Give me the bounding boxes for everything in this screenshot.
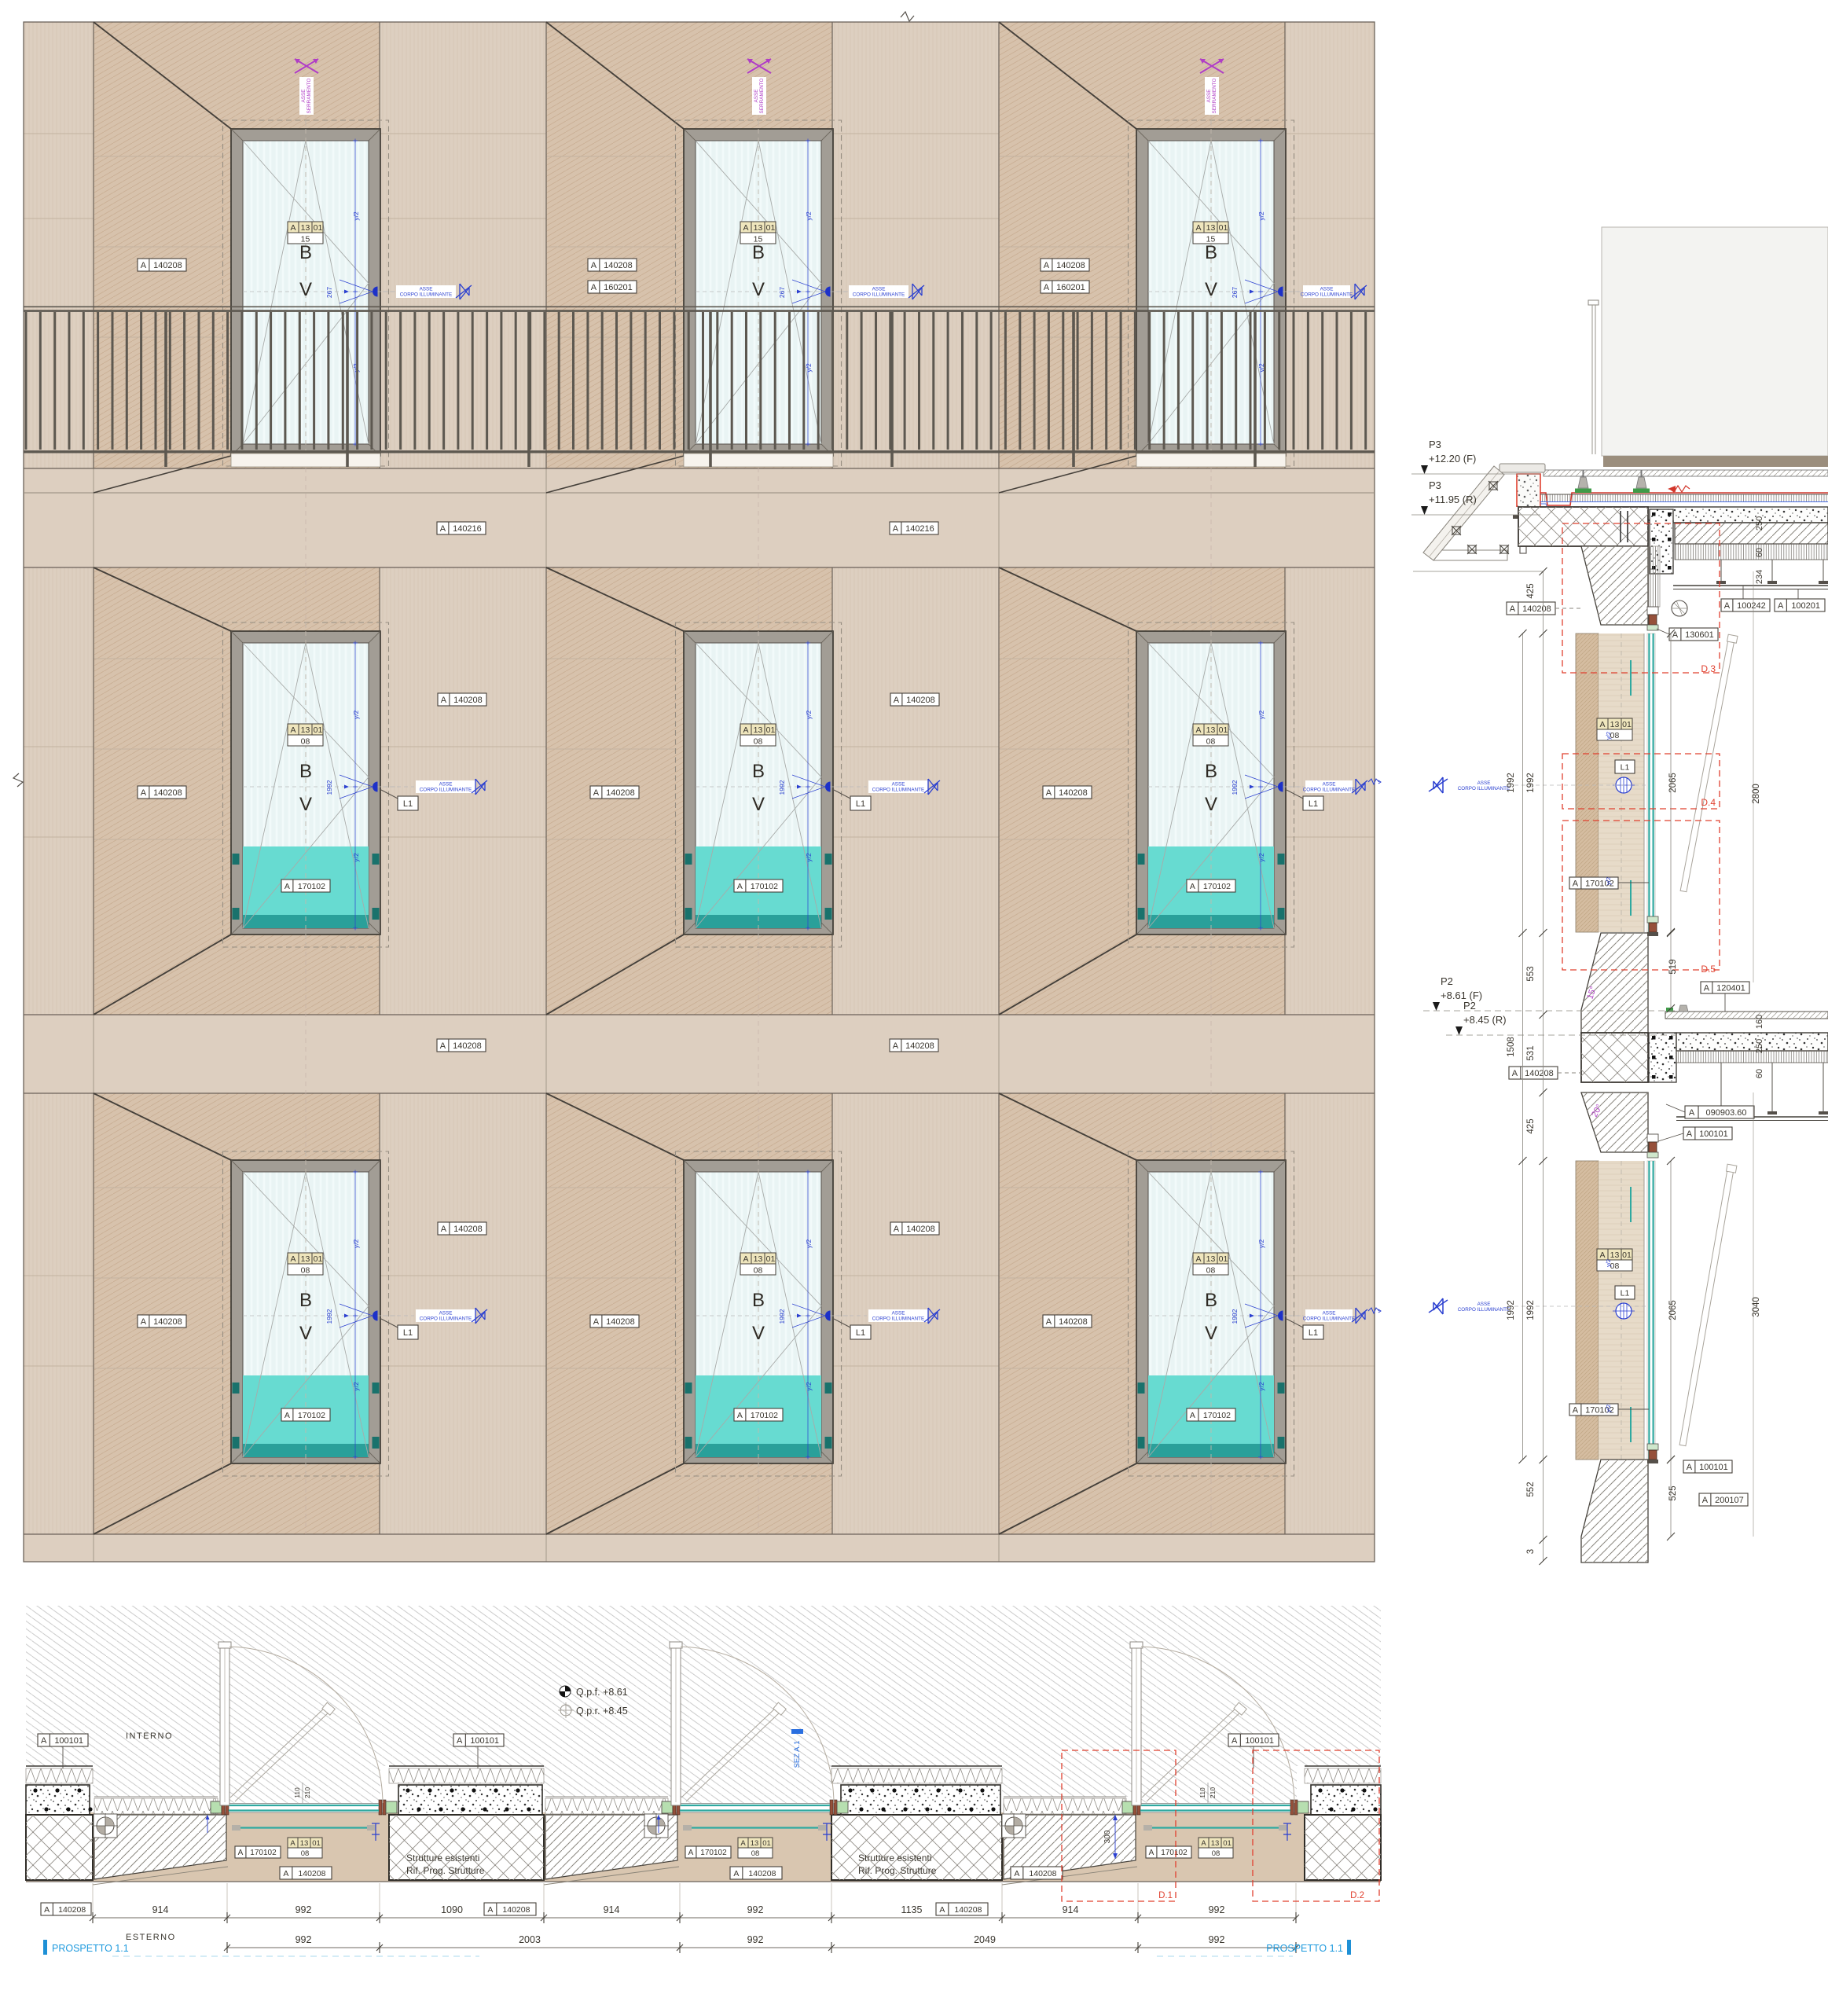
svg-text:CORPO ILLUMINANTE: CORPO ILLUMINANTE bbox=[1458, 1307, 1510, 1313]
svg-text:A: A bbox=[1232, 1736, 1238, 1746]
svg-text:2003: 2003 bbox=[519, 1934, 541, 1945]
svg-text:ASSE: ASSE bbox=[1320, 287, 1334, 292]
svg-text:160201: 160201 bbox=[1056, 283, 1085, 292]
svg-text:L1: L1 bbox=[403, 799, 413, 809]
svg-text:ASSE: ASSE bbox=[1206, 89, 1212, 102]
svg-text:D.3: D.3 bbox=[1701, 663, 1716, 674]
svg-text:A: A bbox=[141, 261, 147, 270]
svg-text:140208: 140208 bbox=[954, 1905, 982, 1915]
svg-text:ESTERNO: ESTERNO bbox=[126, 1933, 176, 1942]
svg-text:100101: 100101 bbox=[1699, 1129, 1728, 1139]
svg-text:01: 01 bbox=[1223, 1839, 1232, 1848]
svg-text:L1: L1 bbox=[1621, 763, 1630, 773]
svg-text:200107: 200107 bbox=[1715, 1496, 1744, 1505]
svg-text:100101: 100101 bbox=[1245, 1736, 1274, 1746]
svg-text:01: 01 bbox=[1622, 1250, 1632, 1260]
svg-text:A: A bbox=[1724, 601, 1731, 611]
svg-text:A: A bbox=[141, 788, 147, 798]
svg-text:992: 992 bbox=[747, 1904, 764, 1915]
svg-text:A: A bbox=[894, 696, 900, 705]
svg-text:ASSE: ASSE bbox=[892, 1311, 905, 1316]
svg-text:D.1: D.1 bbox=[1158, 1891, 1173, 1900]
svg-text:100201: 100201 bbox=[1791, 601, 1820, 611]
svg-text:140208: 140208 bbox=[153, 261, 182, 270]
svg-text:y/2: y/2 bbox=[1605, 1259, 1612, 1267]
svg-text:INTERNO: INTERNO bbox=[126, 1731, 173, 1741]
svg-text:L1: L1 bbox=[403, 1328, 413, 1338]
svg-text:CORPO ILLUMINANTE: CORPO ILLUMINANTE bbox=[853, 292, 905, 298]
svg-text:140208: 140208 bbox=[1029, 1869, 1056, 1878]
svg-text:140208: 140208 bbox=[1059, 788, 1088, 798]
svg-text:ASSE: ASSE bbox=[439, 782, 453, 788]
svg-text:60: 60 bbox=[1755, 1069, 1764, 1078]
svg-text:A: A bbox=[1201, 1839, 1206, 1848]
svg-text:140208: 140208 bbox=[153, 788, 182, 798]
svg-text:13: 13 bbox=[1610, 1250, 1620, 1260]
svg-text:110: 110 bbox=[1198, 1787, 1206, 1798]
svg-text:Rif. Prog. Strutture: Rif. Prog. Strutture bbox=[406, 1865, 485, 1876]
svg-text:1992: 1992 bbox=[1507, 773, 1516, 793]
svg-text:ASSE: ASSE bbox=[1477, 780, 1491, 786]
svg-text:553: 553 bbox=[1526, 966, 1536, 981]
svg-text:090903.60: 090903.60 bbox=[1706, 1108, 1747, 1118]
svg-text:13: 13 bbox=[300, 1839, 309, 1848]
svg-text:PROSPETTO 1.1: PROSPETTO 1.1 bbox=[52, 1943, 129, 1954]
svg-text:ASSE: ASSE bbox=[754, 89, 759, 102]
svg-text:140208: 140208 bbox=[298, 1869, 325, 1878]
svg-text:13: 13 bbox=[1211, 1839, 1220, 1848]
svg-text:992: 992 bbox=[295, 1904, 312, 1915]
svg-text:552: 552 bbox=[1526, 1482, 1536, 1496]
svg-text:P3: P3 bbox=[1429, 439, 1441, 450]
svg-text:A: A bbox=[1599, 720, 1605, 729]
svg-text:y/2: y/2 bbox=[1605, 877, 1612, 885]
svg-text:140208: 140208 bbox=[606, 788, 635, 798]
svg-text:A: A bbox=[894, 1225, 900, 1234]
svg-text:01: 01 bbox=[312, 1839, 321, 1848]
svg-text:100101: 100101 bbox=[1699, 1463, 1728, 1472]
svg-text:A: A bbox=[1689, 1108, 1695, 1118]
svg-text:A: A bbox=[41, 1736, 47, 1746]
svg-text:Q.p.f. +8.61: Q.p.f. +8.61 bbox=[576, 1687, 628, 1698]
svg-text:525: 525 bbox=[1668, 1485, 1678, 1500]
svg-text:A: A bbox=[283, 1869, 288, 1878]
svg-text:A: A bbox=[893, 524, 899, 534]
svg-text:234: 234 bbox=[1755, 570, 1764, 584]
svg-text:A: A bbox=[1512, 1069, 1518, 1078]
svg-text:140208: 140208 bbox=[502, 1905, 530, 1915]
svg-text:A: A bbox=[440, 524, 446, 534]
svg-text:SERRAMENTO: SERRAMENTO bbox=[1212, 78, 1217, 113]
svg-text:425: 425 bbox=[1526, 1118, 1536, 1133]
svg-text:+11.95 (R): +11.95 (R) bbox=[1429, 494, 1477, 505]
svg-text:A: A bbox=[1573, 1405, 1579, 1415]
svg-text:L1: L1 bbox=[1309, 799, 1318, 809]
svg-text:A: A bbox=[457, 1736, 463, 1746]
svg-text:ASSE: ASSE bbox=[892, 782, 905, 788]
svg-text:A: A bbox=[1046, 1317, 1052, 1327]
svg-text:140208: 140208 bbox=[906, 696, 935, 705]
svg-text:250: 250 bbox=[1755, 516, 1764, 531]
svg-text:13: 13 bbox=[1610, 720, 1620, 729]
svg-text:+12.20 (F): +12.20 (F) bbox=[1429, 453, 1476, 465]
svg-text:A: A bbox=[440, 1041, 446, 1051]
svg-text:210: 210 bbox=[1209, 1787, 1217, 1798]
svg-text:992: 992 bbox=[747, 1934, 764, 1945]
svg-text:01: 01 bbox=[762, 1839, 771, 1848]
svg-text:SERRAMENTO: SERRAMENTO bbox=[759, 78, 765, 113]
svg-text:1992: 1992 bbox=[1507, 1300, 1516, 1320]
svg-text:A: A bbox=[1046, 788, 1052, 798]
svg-text:914: 914 bbox=[152, 1904, 169, 1915]
svg-text:A: A bbox=[1044, 261, 1050, 270]
svg-text:ASSE: ASSE bbox=[439, 1311, 453, 1316]
svg-text:L1: L1 bbox=[1621, 1289, 1630, 1298]
svg-text:210: 210 bbox=[303, 1787, 311, 1798]
svg-text:3: 3 bbox=[1526, 1549, 1536, 1554]
svg-text:A: A bbox=[441, 696, 447, 705]
svg-text:140208: 140208 bbox=[1525, 1069, 1554, 1078]
svg-text:170102: 170102 bbox=[700, 1849, 727, 1857]
svg-text:160201: 160201 bbox=[604, 283, 633, 292]
svg-text:D.5: D.5 bbox=[1701, 964, 1716, 975]
svg-text:08: 08 bbox=[1212, 1849, 1221, 1858]
svg-text:300: 300 bbox=[1103, 1830, 1112, 1843]
svg-text:3040: 3040 bbox=[1752, 1297, 1761, 1317]
svg-text:A: A bbox=[487, 1905, 493, 1915]
svg-text:140208: 140208 bbox=[1059, 1317, 1088, 1327]
svg-text:P2: P2 bbox=[1463, 1000, 1476, 1012]
svg-text:140208: 140208 bbox=[453, 1225, 483, 1234]
svg-text:531: 531 bbox=[1526, 1045, 1536, 1060]
svg-text:A: A bbox=[1014, 1869, 1019, 1878]
svg-text:SERRAMENTO: SERRAMENTO bbox=[307, 78, 312, 113]
svg-text:1992: 1992 bbox=[1526, 1300, 1536, 1320]
svg-text:A: A bbox=[1704, 983, 1710, 993]
svg-text:140208: 140208 bbox=[453, 696, 483, 705]
svg-text:2065: 2065 bbox=[1668, 773, 1678, 793]
svg-text:A: A bbox=[591, 283, 597, 292]
svg-text:CORPO ILLUMINANTE: CORPO ILLUMINANTE bbox=[400, 292, 452, 298]
svg-text:60: 60 bbox=[1755, 548, 1764, 557]
svg-text:140208: 140208 bbox=[453, 1041, 482, 1051]
svg-text:ASSE: ASSE bbox=[1477, 1302, 1491, 1307]
svg-text:A: A bbox=[44, 1905, 50, 1915]
svg-text:992: 992 bbox=[295, 1934, 312, 1945]
svg-text:Rif. Prog. Strutture: Rif. Prog. Strutture bbox=[858, 1865, 937, 1876]
svg-text:13: 13 bbox=[751, 1839, 759, 1848]
svg-text:A: A bbox=[1599, 1250, 1605, 1260]
svg-text:2065: 2065 bbox=[1668, 1300, 1678, 1320]
svg-text:140208: 140208 bbox=[905, 1041, 934, 1051]
svg-text:CORPO ILLUMINANTE: CORPO ILLUMINANTE bbox=[872, 1316, 924, 1322]
svg-text:140208: 140208 bbox=[906, 1225, 935, 1234]
svg-text:519: 519 bbox=[1668, 959, 1678, 974]
svg-text:425: 425 bbox=[1526, 583, 1536, 598]
svg-text:1508: 1508 bbox=[1507, 1037, 1516, 1057]
svg-text:ASSE: ASSE bbox=[1323, 782, 1336, 788]
svg-text:CORPO ILLUMINANTE: CORPO ILLUMINANTE bbox=[420, 1316, 472, 1322]
svg-text:A: A bbox=[441, 1225, 447, 1234]
svg-text:SEZ A.1: SEZ A.1 bbox=[793, 1741, 802, 1768]
svg-text:ASSE: ASSE bbox=[301, 89, 307, 102]
svg-text:A: A bbox=[740, 1839, 746, 1848]
svg-text:CORPO ILLUMINANTE: CORPO ILLUMINANTE bbox=[1301, 292, 1353, 298]
svg-text:CORPO ILLUMINANTE: CORPO ILLUMINANTE bbox=[1458, 786, 1510, 791]
svg-text:L1: L1 bbox=[1309, 1328, 1318, 1338]
svg-text:170102: 170102 bbox=[1161, 1849, 1187, 1857]
svg-text:A: A bbox=[290, 1839, 295, 1848]
svg-text:120401: 120401 bbox=[1716, 983, 1745, 993]
svg-text:2049: 2049 bbox=[974, 1934, 996, 1945]
svg-text:P3: P3 bbox=[1429, 479, 1441, 491]
svg-text:160: 160 bbox=[1755, 1015, 1764, 1029]
svg-text:A: A bbox=[1702, 1496, 1709, 1505]
svg-text:CORPO ILLUMINANTE: CORPO ILLUMINANTE bbox=[420, 788, 472, 793]
svg-text:140208: 140208 bbox=[604, 261, 633, 270]
svg-text:140216: 140216 bbox=[905, 524, 934, 534]
svg-text:D.4: D.4 bbox=[1701, 797, 1716, 808]
svg-text:A: A bbox=[238, 1849, 244, 1857]
svg-text:D.2: D.2 bbox=[1350, 1891, 1364, 1900]
svg-text:140208: 140208 bbox=[58, 1905, 86, 1915]
svg-text:110: 110 bbox=[293, 1787, 301, 1798]
svg-text:140208: 140208 bbox=[1522, 604, 1551, 614]
svg-text:A: A bbox=[1510, 604, 1516, 614]
svg-text:Strutture esistenti: Strutture esistenti bbox=[858, 1853, 931, 1864]
svg-text:ASSE: ASSE bbox=[872, 287, 886, 292]
svg-text:100101: 100101 bbox=[54, 1736, 83, 1746]
svg-text:140216: 140216 bbox=[453, 524, 482, 534]
svg-text:250: 250 bbox=[1755, 1039, 1764, 1053]
svg-text:L1: L1 bbox=[856, 1328, 865, 1338]
svg-text:A: A bbox=[1687, 1463, 1693, 1472]
svg-text:170102: 170102 bbox=[250, 1849, 277, 1857]
svg-text:914: 914 bbox=[604, 1904, 620, 1915]
svg-text:A: A bbox=[688, 1849, 694, 1857]
svg-text:+8.45 (R): +8.45 (R) bbox=[1463, 1014, 1507, 1026]
svg-text:140208: 140208 bbox=[1056, 261, 1085, 270]
svg-text:A: A bbox=[733, 1869, 739, 1878]
svg-text:A: A bbox=[1044, 283, 1050, 292]
svg-text:A: A bbox=[939, 1905, 945, 1915]
svg-text:ASSE: ASSE bbox=[1323, 1311, 1336, 1316]
svg-text:+8.61 (F): +8.61 (F) bbox=[1441, 990, 1482, 1001]
svg-text:01: 01 bbox=[1622, 720, 1632, 729]
svg-text:CORPO ILLUMINANTE: CORPO ILLUMINANTE bbox=[1303, 788, 1355, 793]
svg-text:100242: 100242 bbox=[1737, 601, 1766, 611]
svg-text:A: A bbox=[591, 261, 597, 270]
svg-text:140208: 140208 bbox=[153, 1317, 182, 1327]
svg-text:A: A bbox=[593, 788, 600, 798]
svg-text:L1: L1 bbox=[856, 799, 865, 809]
svg-text:y/2: y/2 bbox=[1605, 1405, 1612, 1412]
svg-text:914: 914 bbox=[1063, 1904, 1079, 1915]
svg-text:1090: 1090 bbox=[441, 1904, 463, 1915]
svg-text:08: 08 bbox=[301, 1849, 310, 1858]
svg-text:1992: 1992 bbox=[1526, 773, 1536, 793]
svg-text:Strutture esistenti: Strutture esistenti bbox=[406, 1853, 479, 1864]
svg-text:ASSE: ASSE bbox=[420, 287, 433, 292]
svg-text:2800: 2800 bbox=[1752, 784, 1761, 804]
svg-text:130601: 130601 bbox=[1685, 630, 1714, 640]
svg-text:y/2: y/2 bbox=[1605, 732, 1612, 740]
svg-text:140208: 140208 bbox=[606, 1317, 635, 1327]
svg-text:08: 08 bbox=[751, 1849, 760, 1858]
svg-text:140208: 140208 bbox=[748, 1869, 776, 1878]
svg-text:P2: P2 bbox=[1441, 975, 1453, 987]
svg-text:A: A bbox=[1149, 1849, 1154, 1857]
svg-text:992: 992 bbox=[1209, 1934, 1225, 1945]
svg-text:A: A bbox=[1778, 601, 1784, 611]
svg-text:A: A bbox=[593, 1317, 600, 1327]
svg-text:CORPO ILLUMINANTE: CORPO ILLUMINANTE bbox=[1303, 1316, 1355, 1322]
svg-text:CORPO ILLUMINANTE: CORPO ILLUMINANTE bbox=[872, 788, 924, 793]
svg-text:A: A bbox=[141, 1317, 147, 1327]
svg-text:992: 992 bbox=[1209, 1904, 1225, 1915]
svg-text:A: A bbox=[1573, 879, 1579, 888]
svg-text:A: A bbox=[1687, 1129, 1693, 1139]
svg-text:A: A bbox=[893, 1041, 899, 1051]
svg-text:PROSPETTO 1.1: PROSPETTO 1.1 bbox=[1266, 1943, 1343, 1954]
svg-text:100101: 100101 bbox=[470, 1736, 499, 1746]
svg-text:1135: 1135 bbox=[901, 1904, 923, 1915]
svg-text:Q.p.r. +8.45: Q.p.r. +8.45 bbox=[576, 1706, 628, 1717]
